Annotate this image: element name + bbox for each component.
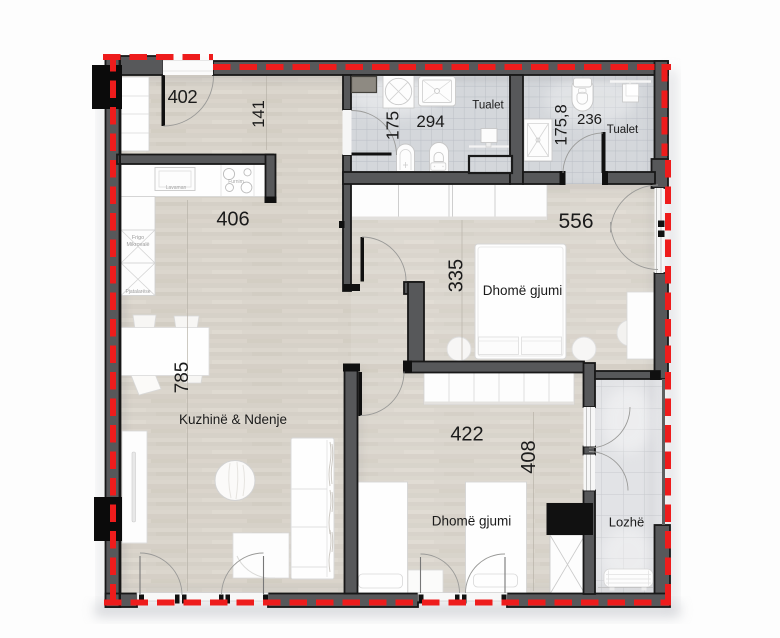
svg-text:422: 422 [450,424,483,446]
svg-text:785: 785 [172,362,193,394]
svg-text:Kuzhinë & Ndenje: Kuzhinë & Ndenje [179,412,287,427]
svg-text:Frigo: Frigo [132,235,144,241]
svg-text:406: 406 [216,209,249,231]
svg-text:175,8: 175,8 [553,104,571,145]
svg-text:Pjatalarëse: Pjatalarëse [125,289,150,295]
svg-text:556: 556 [558,210,593,233]
svg-text:Lavaman: Lavaman [166,185,187,191]
svg-text:294: 294 [416,112,444,131]
svg-text:175: 175 [383,111,403,140]
svg-text:402: 402 [168,86,198,107]
svg-text:141: 141 [250,100,268,128]
svg-text:Furnim: Furnim [228,179,244,185]
svg-text:Lozhë: Lozhë [609,515,644,530]
svg-text:Dhomë gjumi: Dhomë gjumi [483,283,563,298]
svg-text:335: 335 [446,259,468,292]
svg-text:Dhomë gjumi: Dhomë gjumi [432,514,512,529]
svg-text:Mikrovalë: Mikrovalë [126,242,149,248]
svg-text:408: 408 [518,440,540,473]
svg-text:Tualet: Tualet [607,124,639,136]
svg-text:236: 236 [577,111,602,128]
svg-text:Tualet: Tualet [472,100,504,112]
